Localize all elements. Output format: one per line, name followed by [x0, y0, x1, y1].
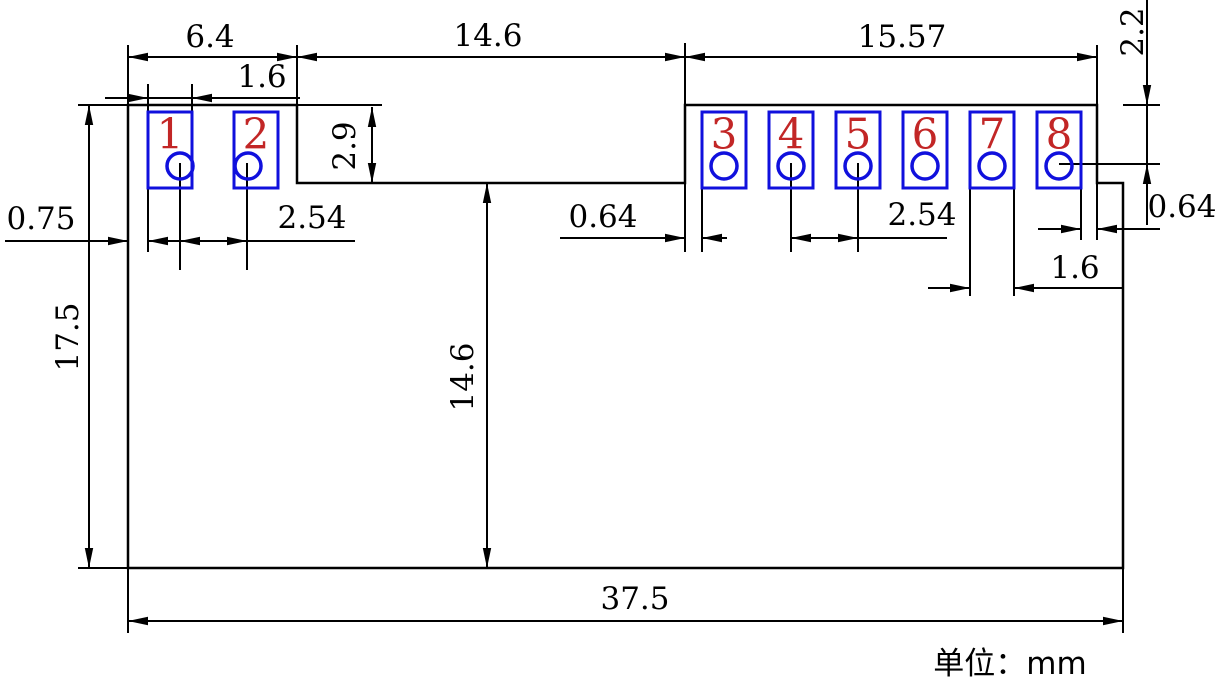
dimension-lines — [5, 0, 1160, 633]
arrow-pitchL-right — [227, 237, 247, 245]
arrow-margin-right — [148, 237, 168, 245]
arrow-offset-bottom — [1143, 164, 1151, 184]
arrow-14.6-left — [297, 53, 317, 61]
unit-label: 单位：mm — [933, 646, 1086, 682]
pad-3-number: 3 — [711, 110, 738, 159]
arrow-pad8g-right — [1097, 225, 1117, 233]
arrow-pad1w-left — [128, 94, 148, 102]
dim-left-pitch-label: 2.54 — [277, 200, 346, 236]
pad-7-number: 7 — [979, 110, 1006, 159]
dim-pad7-width-label: 1.6 — [1050, 250, 1099, 286]
arrow-notch-top — [368, 107, 376, 127]
arrow-total-left — [128, 617, 148, 625]
arrow-pad3m-left — [665, 234, 685, 242]
arrow-15.57-right — [1077, 53, 1097, 61]
pad-1: 1 — [148, 110, 193, 189]
dim-pad3-margin-label: 0.64 — [568, 199, 637, 235]
dim-left-margin-label: 0.75 — [6, 201, 75, 237]
dim-lower-height-label: 14.6 — [445, 342, 481, 411]
dimension-labels: 6.4 14.6 15.57 1.6 2.9 2.2 0.75 2.54 17.… — [6, 7, 1216, 682]
pad-6-number: 6 — [912, 110, 939, 159]
dim-hole-offset-label: 2.2 — [1115, 7, 1151, 56]
dim-total-width-label: 37.5 — [600, 581, 669, 617]
arrow-15.57-left — [685, 53, 705, 61]
arrow-margin-left — [108, 237, 128, 245]
arrow-offset-top — [1143, 85, 1151, 105]
arrow-lower-bottom — [483, 548, 491, 568]
arrow-lower-top — [483, 183, 491, 203]
dim-notch-width-label: 14.6 — [453, 18, 522, 54]
pads: 1 2 3 4 5 6 7 — [148, 110, 1081, 189]
pad-4-number: 4 — [778, 110, 805, 159]
dim-pad1-width-label: 1.6 — [237, 59, 286, 95]
arrow-pad1w-right — [192, 94, 212, 102]
arrow-pad7w-right — [1014, 284, 1034, 292]
arrow-pitchR-left — [791, 234, 811, 242]
pad-7: 7 — [970, 110, 1014, 189]
pad-2-number: 2 — [243, 110, 270, 159]
arrow-pad3m-right — [702, 234, 722, 242]
dim-top-right-label: 15.57 — [858, 19, 947, 55]
pad-5-number: 5 — [845, 110, 872, 159]
pad-6: 6 — [903, 110, 947, 189]
drawing-canvas: 1 2 3 4 5 6 7 — [0, 0, 1225, 692]
arrow-notch-bottom — [368, 163, 376, 183]
arrow-pad8g-left — [1061, 225, 1081, 233]
arrow-6.4-left — [128, 53, 148, 61]
dim-pad8-gap-label: 0.64 — [1147, 189, 1216, 225]
arrow-height-bottom — [85, 548, 93, 568]
dim-right-pitch-label: 2.54 — [887, 197, 956, 233]
pad-1-number: 1 — [157, 110, 184, 159]
dim-notch-depth-label: 2.9 — [327, 121, 363, 170]
arrow-total-right — [1103, 617, 1123, 625]
arrow-14.6-right — [665, 53, 685, 61]
dim-top-left-label: 6.4 — [185, 19, 234, 55]
arrow-pitchR-right — [838, 234, 858, 242]
pad-3: 3 — [702, 110, 746, 189]
dim-board-height-label: 17.5 — [50, 302, 86, 371]
pad-8: 8 — [1037, 110, 1081, 189]
dimension-drawing: 1 2 3 4 5 6 7 — [0, 0, 1225, 692]
arrow-pitchL-left — [180, 237, 200, 245]
pad-8-number: 8 — [1046, 110, 1073, 159]
arrow-height-top — [85, 105, 93, 125]
pad-2: 2 — [234, 110, 278, 189]
arrow-pad7w-left — [950, 284, 970, 292]
